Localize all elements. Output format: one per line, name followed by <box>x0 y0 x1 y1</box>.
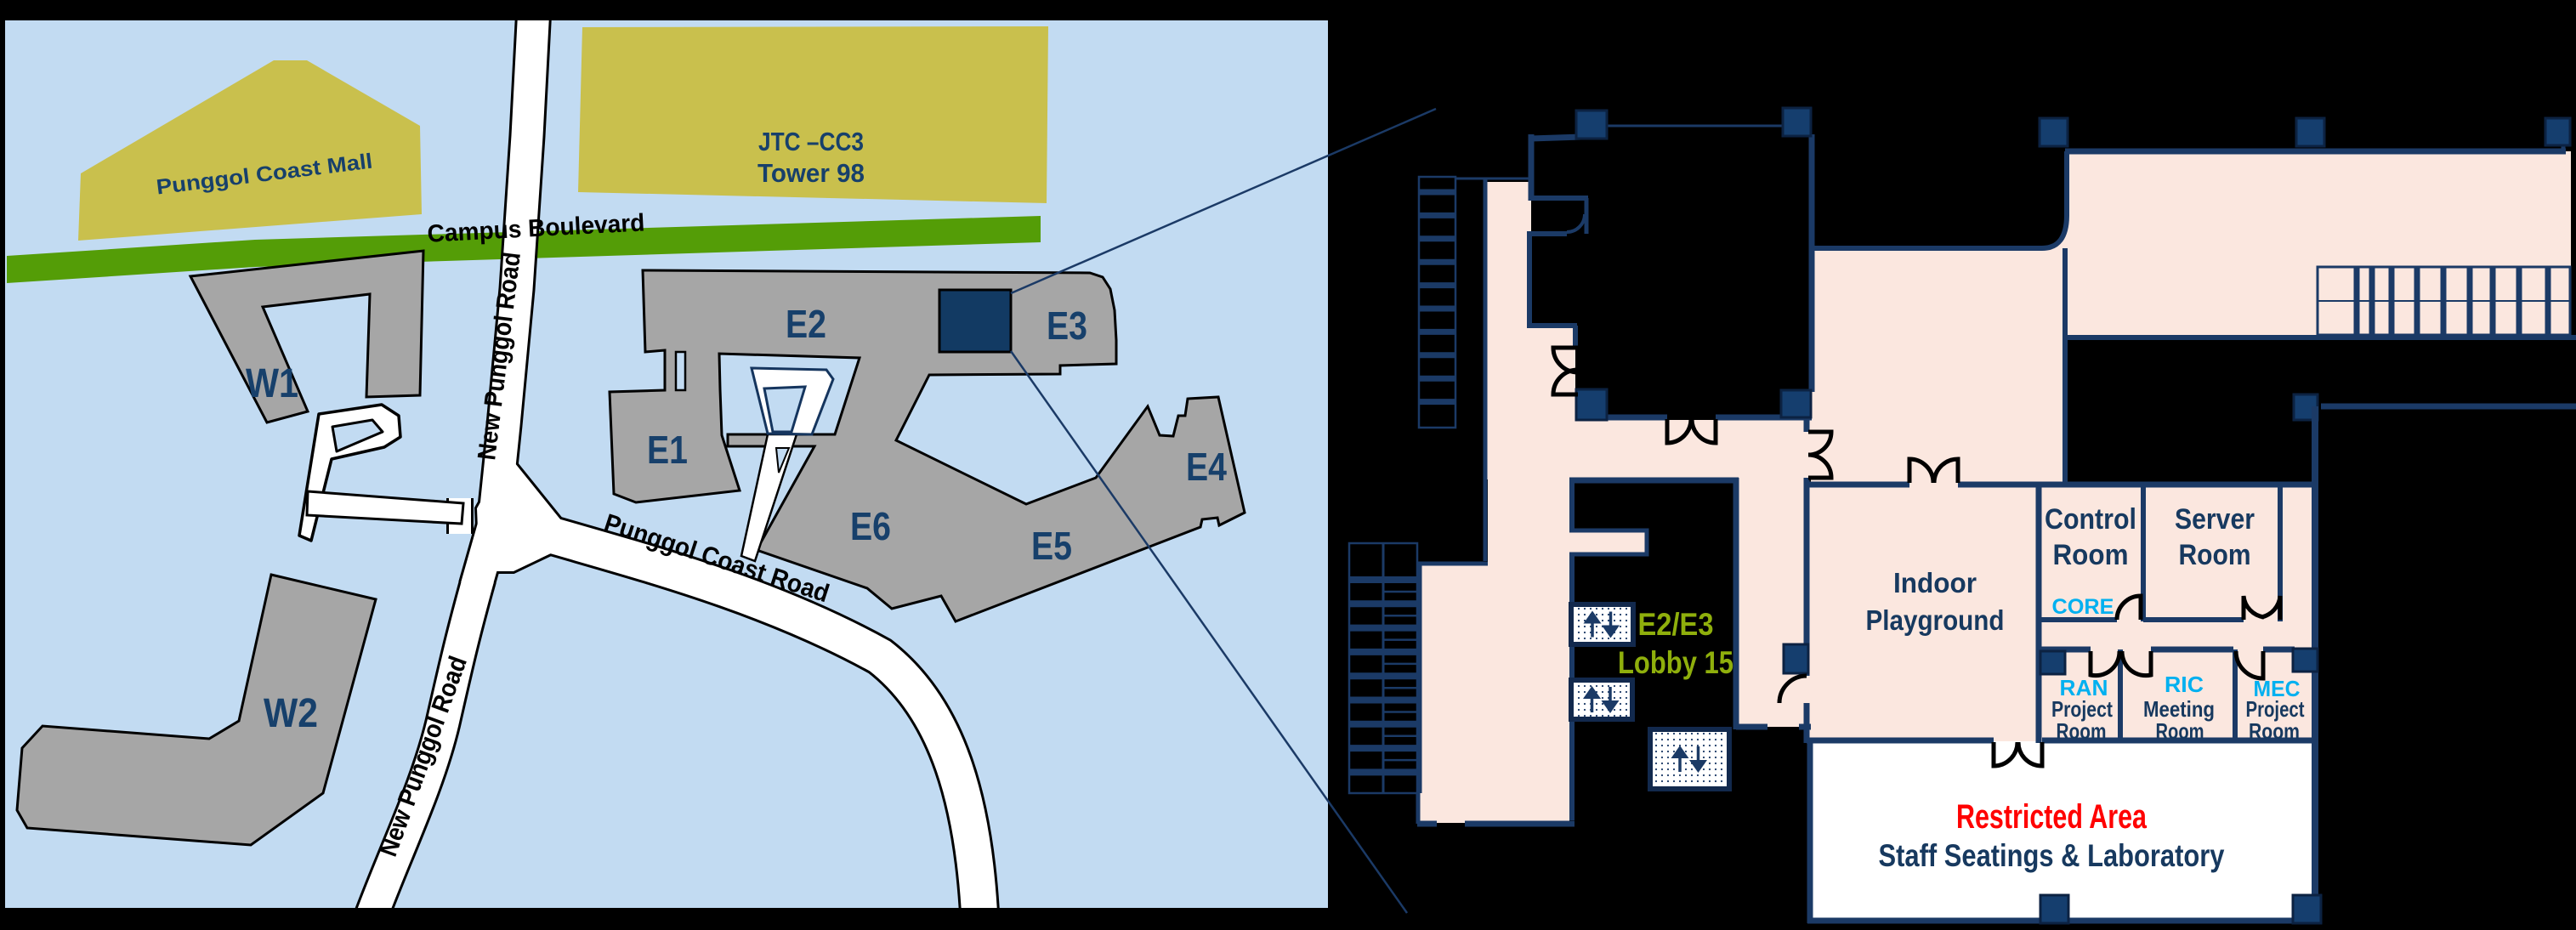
svg-text:Room: Room <box>2249 718 2300 744</box>
svg-text:Staff Seatings & Laboratory: Staff Seatings & Laboratory <box>1879 838 2225 873</box>
svg-text:E1: E1 <box>647 428 688 472</box>
svg-text:W2: W2 <box>264 691 318 736</box>
svg-text:Control: Control <box>2045 503 2136 536</box>
svg-text:CORE: CORE <box>2052 595 2114 619</box>
svg-text:Server: Server <box>2175 503 2255 536</box>
svg-text:Playground: Playground <box>1866 604 2005 636</box>
svg-text:Room: Room <box>2053 539 2129 571</box>
svg-text:Room: Room <box>2179 539 2251 571</box>
svg-text:Tower 98: Tower 98 <box>757 158 865 188</box>
svg-text:E3: E3 <box>1047 303 1087 348</box>
svg-text:E2: E2 <box>786 302 826 346</box>
svg-text:JTC –CC3: JTC –CC3 <box>758 127 864 156</box>
svg-text:Restricted Area: Restricted Area <box>1956 798 2148 836</box>
svg-text:RIC: RIC <box>2165 672 2204 697</box>
svg-text:E5: E5 <box>1031 524 1072 568</box>
svg-text:E4: E4 <box>1186 445 1227 489</box>
svg-text:Room: Room <box>2057 718 2107 744</box>
svg-text:Lobby 15: Lobby 15 <box>1618 645 1733 680</box>
svg-text:E6: E6 <box>850 504 891 548</box>
svg-text:E2/E3: E2/E3 <box>1638 607 1714 642</box>
svg-text:Indoor: Indoor <box>1893 567 1977 598</box>
svg-text:W1: W1 <box>246 361 298 406</box>
svg-text:Room: Room <box>2156 718 2204 744</box>
